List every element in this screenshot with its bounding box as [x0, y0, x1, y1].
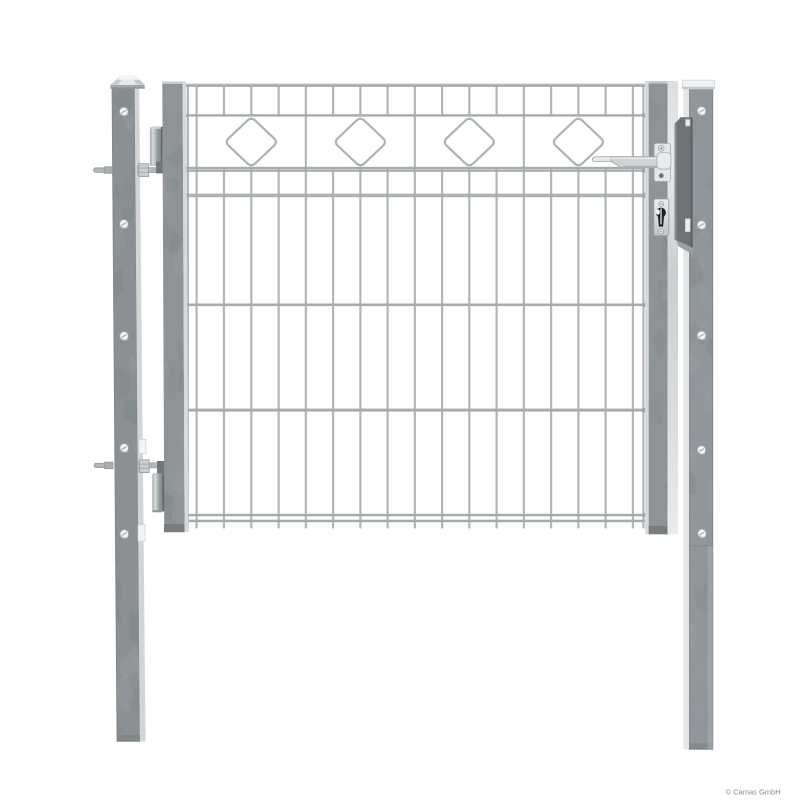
svg-text:© Camas GmbH: © Camas GmbH	[726, 787, 781, 796]
